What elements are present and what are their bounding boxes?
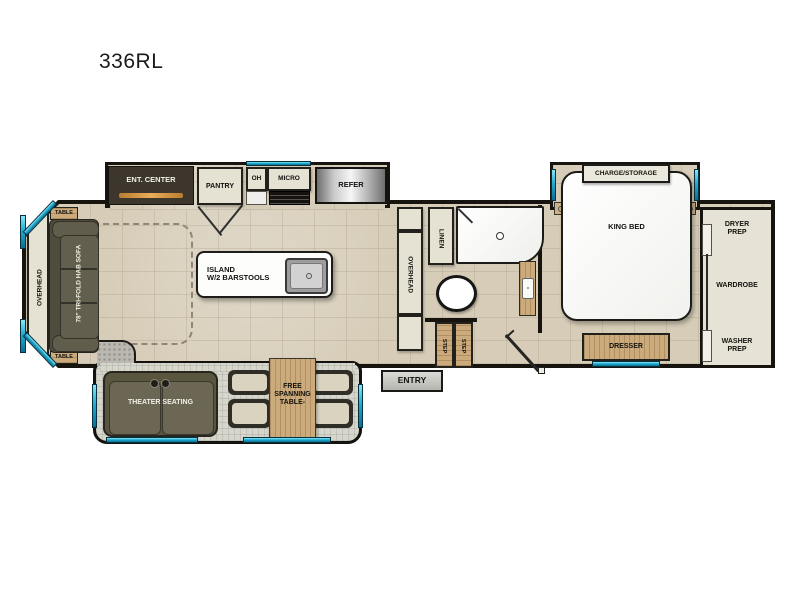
entry-step: ENTRY — [381, 370, 443, 392]
cabinet-below-overhead — [397, 315, 423, 351]
king-bed-label: KING BED — [563, 223, 690, 231]
vanity-sink-drain — [527, 287, 529, 289]
dinette-window-bottom-left — [106, 437, 198, 443]
ent-center-label: ENT. CENTER — [109, 176, 193, 184]
refer-label: REFER — [317, 181, 385, 189]
chair-cushion — [314, 403, 349, 424]
table-label-line3: TABLE- — [270, 399, 315, 407]
cabinet-above-overhead — [397, 207, 423, 231]
pantry-label: PANTRY — [199, 183, 241, 191]
entertainment-center: ENT. CENTER — [108, 166, 194, 205]
island-sink-drain — [306, 273, 312, 279]
overhead-front-label: OVERHEAD — [36, 238, 43, 338]
dresser-label: DRESSER — [584, 343, 668, 351]
island-sink — [285, 258, 328, 294]
theater-seat-right — [162, 381, 214, 435]
micro-label: MICRO — [269, 175, 309, 182]
sofa-label: 78" TRI-FOLD HAB SOFA — [75, 224, 82, 344]
step-right-label: STEP — [460, 326, 466, 366]
dining-table-label: FREE SPANNING TABLE- — [270, 383, 315, 406]
closet-door-pull-bottom — [702, 330, 712, 362]
bedroom-rear-window — [592, 361, 660, 367]
cupholder-left — [150, 379, 159, 388]
washer-prep-label: WASHER PREP — [715, 338, 759, 354]
dresser: DRESSER — [582, 333, 670, 361]
step-right: STEP — [454, 322, 473, 368]
vanity-sink — [522, 278, 534, 299]
linen-cabinet: LINEN — [428, 207, 454, 265]
cooktop — [269, 191, 310, 205]
overhead-cabinet-mid: OVERHEAD — [397, 231, 423, 315]
king-bed: KING BED — [561, 171, 692, 321]
table-label-line2: SPANNING — [270, 391, 315, 399]
bedroom-window-right — [694, 169, 699, 201]
overhead-mid-label: OVERHEAD — [406, 237, 413, 313]
closet-door-pull-top — [702, 224, 712, 256]
rear-closet: DRYER PREP WARDROBE WASHER PREP — [700, 207, 774, 368]
theater-seating: THEATER SEATING — [103, 371, 218, 437]
dining-chair-tl — [228, 370, 271, 395]
theater-seating-label: THEATER SEATING — [105, 399, 216, 407]
island-label-line2: W/2 BARSTOOLS — [207, 274, 269, 282]
page-title: 336RL — [99, 50, 163, 74]
table-top-label: TABLE — [51, 210, 77, 216]
cupholder-right — [161, 379, 170, 388]
sofa — [49, 219, 99, 353]
dinette-window-bottom-right — [243, 437, 331, 443]
dinette-window-left — [92, 384, 97, 428]
fireplace-accent — [119, 193, 183, 198]
island-label: ISLAND W/2 BARSTOOLS — [207, 266, 269, 283]
refrigerator: REFER — [315, 167, 387, 204]
microwave: MICRO — [267, 167, 311, 191]
dryer-prep-label: DRYER PREP — [715, 221, 759, 237]
charge-storage-label: CHARGE/STORAGE — [584, 170, 668, 177]
chair-cushion — [232, 374, 267, 391]
chair-cushion — [232, 403, 267, 424]
wardrobe-label: WARDROBE — [703, 282, 771, 290]
floorplan-canvas: 336RL ENT. CENTER PANTRY OH MICRO REFER … — [0, 0, 800, 600]
kitchen-island: ISLAND W/2 BARSTOOLS — [196, 251, 333, 298]
bedroom-window-left — [551, 169, 556, 201]
linen-label: LINEN — [437, 213, 444, 265]
theater-seat-left — [109, 381, 161, 435]
dining-table: FREE SPANNING TABLE- — [269, 358, 316, 438]
chair-cushion — [314, 374, 349, 391]
dining-chair-br — [310, 399, 353, 428]
shower-drain — [496, 232, 504, 240]
step-left: STEP — [435, 322, 454, 368]
entry-label: ENTRY — [383, 376, 441, 386]
dining-chair-bl — [228, 399, 271, 428]
overhead-cabinet-oh: OH — [246, 167, 267, 191]
bedroom-door-hinge — [538, 367, 545, 374]
pantry: PANTRY — [197, 167, 243, 205]
dining-chair-tr — [310, 370, 353, 395]
bath-vanity — [519, 261, 536, 316]
counter-below-oh — [246, 191, 267, 205]
oh-label: OH — [248, 175, 265, 182]
table-label-line1: FREE — [270, 383, 315, 391]
closet-door-track — [706, 254, 708, 330]
table-bottom-label: TABLE — [51, 354, 77, 360]
charge-storage: CHARGE/STORAGE — [582, 164, 670, 183]
step-left-label: STEP — [441, 326, 447, 366]
dinette-window-right — [358, 384, 363, 428]
kitchen-window — [246, 161, 311, 166]
toilet — [436, 275, 477, 312]
